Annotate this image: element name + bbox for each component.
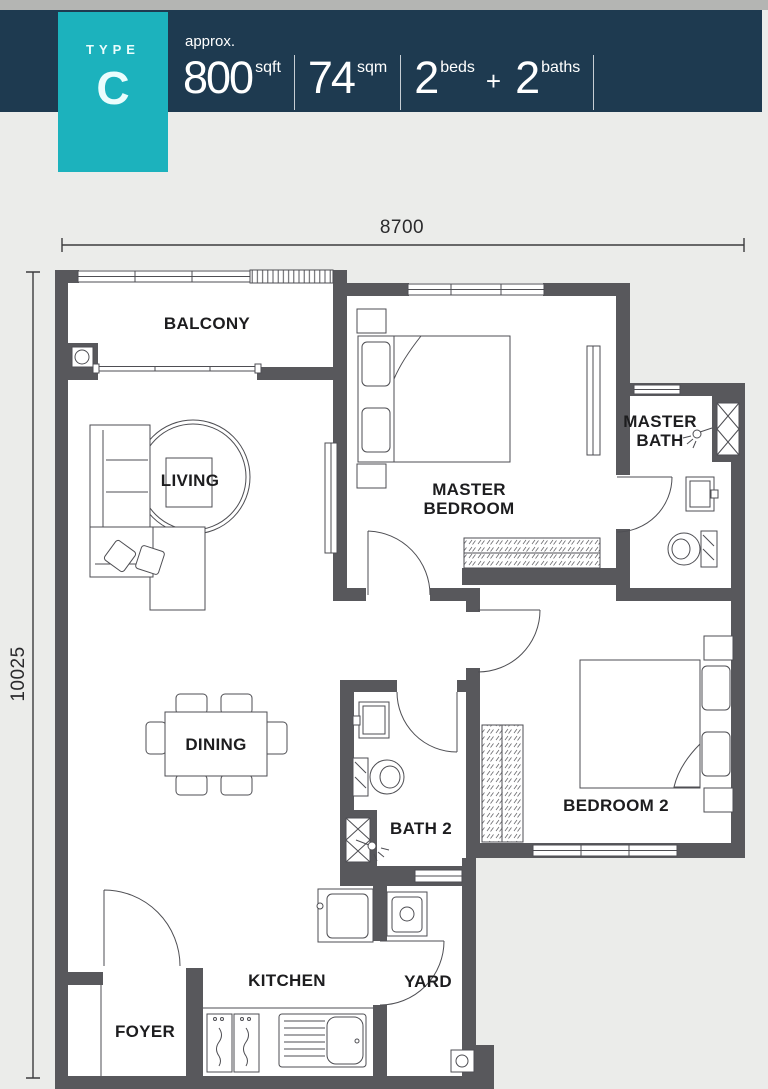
stat-baths-unit: baths — [541, 60, 580, 76]
floorplan-brochure-page: TYPE C approx. 800 sqft 74 sqm 2 beds + … — [0, 0, 768, 1089]
stat-beds-unit: beds — [440, 60, 475, 76]
pillow — [702, 666, 730, 710]
stat-baths-value: 2 — [515, 55, 538, 100]
stove — [207, 1014, 232, 1072]
room-label-master-bedroom: MASTER BEDROOM — [407, 480, 531, 518]
stat-area-sqft-value: 800 — [183, 55, 252, 100]
dining-chair — [146, 722, 166, 754]
room-label-balcony: BALCONY — [164, 314, 250, 334]
faucet — [711, 490, 718, 498]
nightstand — [357, 464, 386, 488]
plus-sign: + — [486, 68, 501, 94]
room-label-dining: DINING — [185, 735, 246, 755]
pillow — [362, 408, 390, 452]
bath2-vent — [346, 818, 370, 862]
sink-bowl — [327, 1017, 363, 1064]
unit-stats: approx. 800 sqft 74 sqm 2 beds + 2 baths — [183, 33, 607, 110]
dining-chair — [176, 694, 207, 714]
pillow — [702, 732, 730, 776]
type-value: C — [58, 61, 168, 115]
pillow — [362, 342, 390, 386]
room-label-kitchen: KITCHEN — [248, 971, 326, 991]
dimension-width-label: 8700 — [380, 217, 424, 239]
nightstand — [357, 309, 386, 333]
fridge-handle — [317, 903, 323, 909]
stat-area-sqm-unit: sqm — [357, 60, 387, 76]
room-label-yard: YARD — [404, 972, 452, 992]
stat-area-sqft-unit: sqft — [255, 60, 281, 76]
room-label-bath2: BATH 2 — [390, 819, 452, 839]
stove — [234, 1014, 259, 1072]
room-label-living: LIVING — [161, 471, 219, 491]
floor-trap — [451, 1050, 474, 1072]
dimension-height-label: 10025 — [8, 646, 30, 701]
yard-fixtures — [387, 892, 427, 936]
dining-chair — [221, 775, 252, 795]
nightstand — [704, 636, 733, 660]
dimension-line-top — [62, 238, 744, 252]
room-label-bedroom2: BEDROOM 2 — [563, 796, 669, 816]
room-label-foyer: FOYER — [115, 1022, 175, 1042]
toilet-bowl — [668, 533, 700, 565]
faucet — [353, 716, 360, 725]
type-label: TYPE — [58, 42, 168, 57]
stat-divider — [400, 55, 401, 110]
dining-chair — [176, 775, 207, 795]
sofa-back — [90, 425, 150, 527]
room-label-master-bath: MASTER BATH — [615, 412, 705, 450]
stat-area-sqm-value: 74 — [308, 55, 354, 100]
approx-label: approx. — [185, 33, 607, 50]
stat-divider — [593, 55, 594, 110]
master-bath-vent — [717, 403, 739, 455]
stat-beds-value: 2 — [414, 55, 437, 100]
stat-divider — [294, 55, 295, 110]
unit-type-tab: TYPE C — [58, 12, 168, 172]
toilet-bowl — [370, 760, 404, 794]
dining-chair — [221, 694, 252, 714]
fridge — [318, 889, 373, 942]
stats-row: 800 sqft 74 sqm 2 beds + 2 baths — [183, 55, 607, 110]
nightstand — [704, 788, 733, 812]
